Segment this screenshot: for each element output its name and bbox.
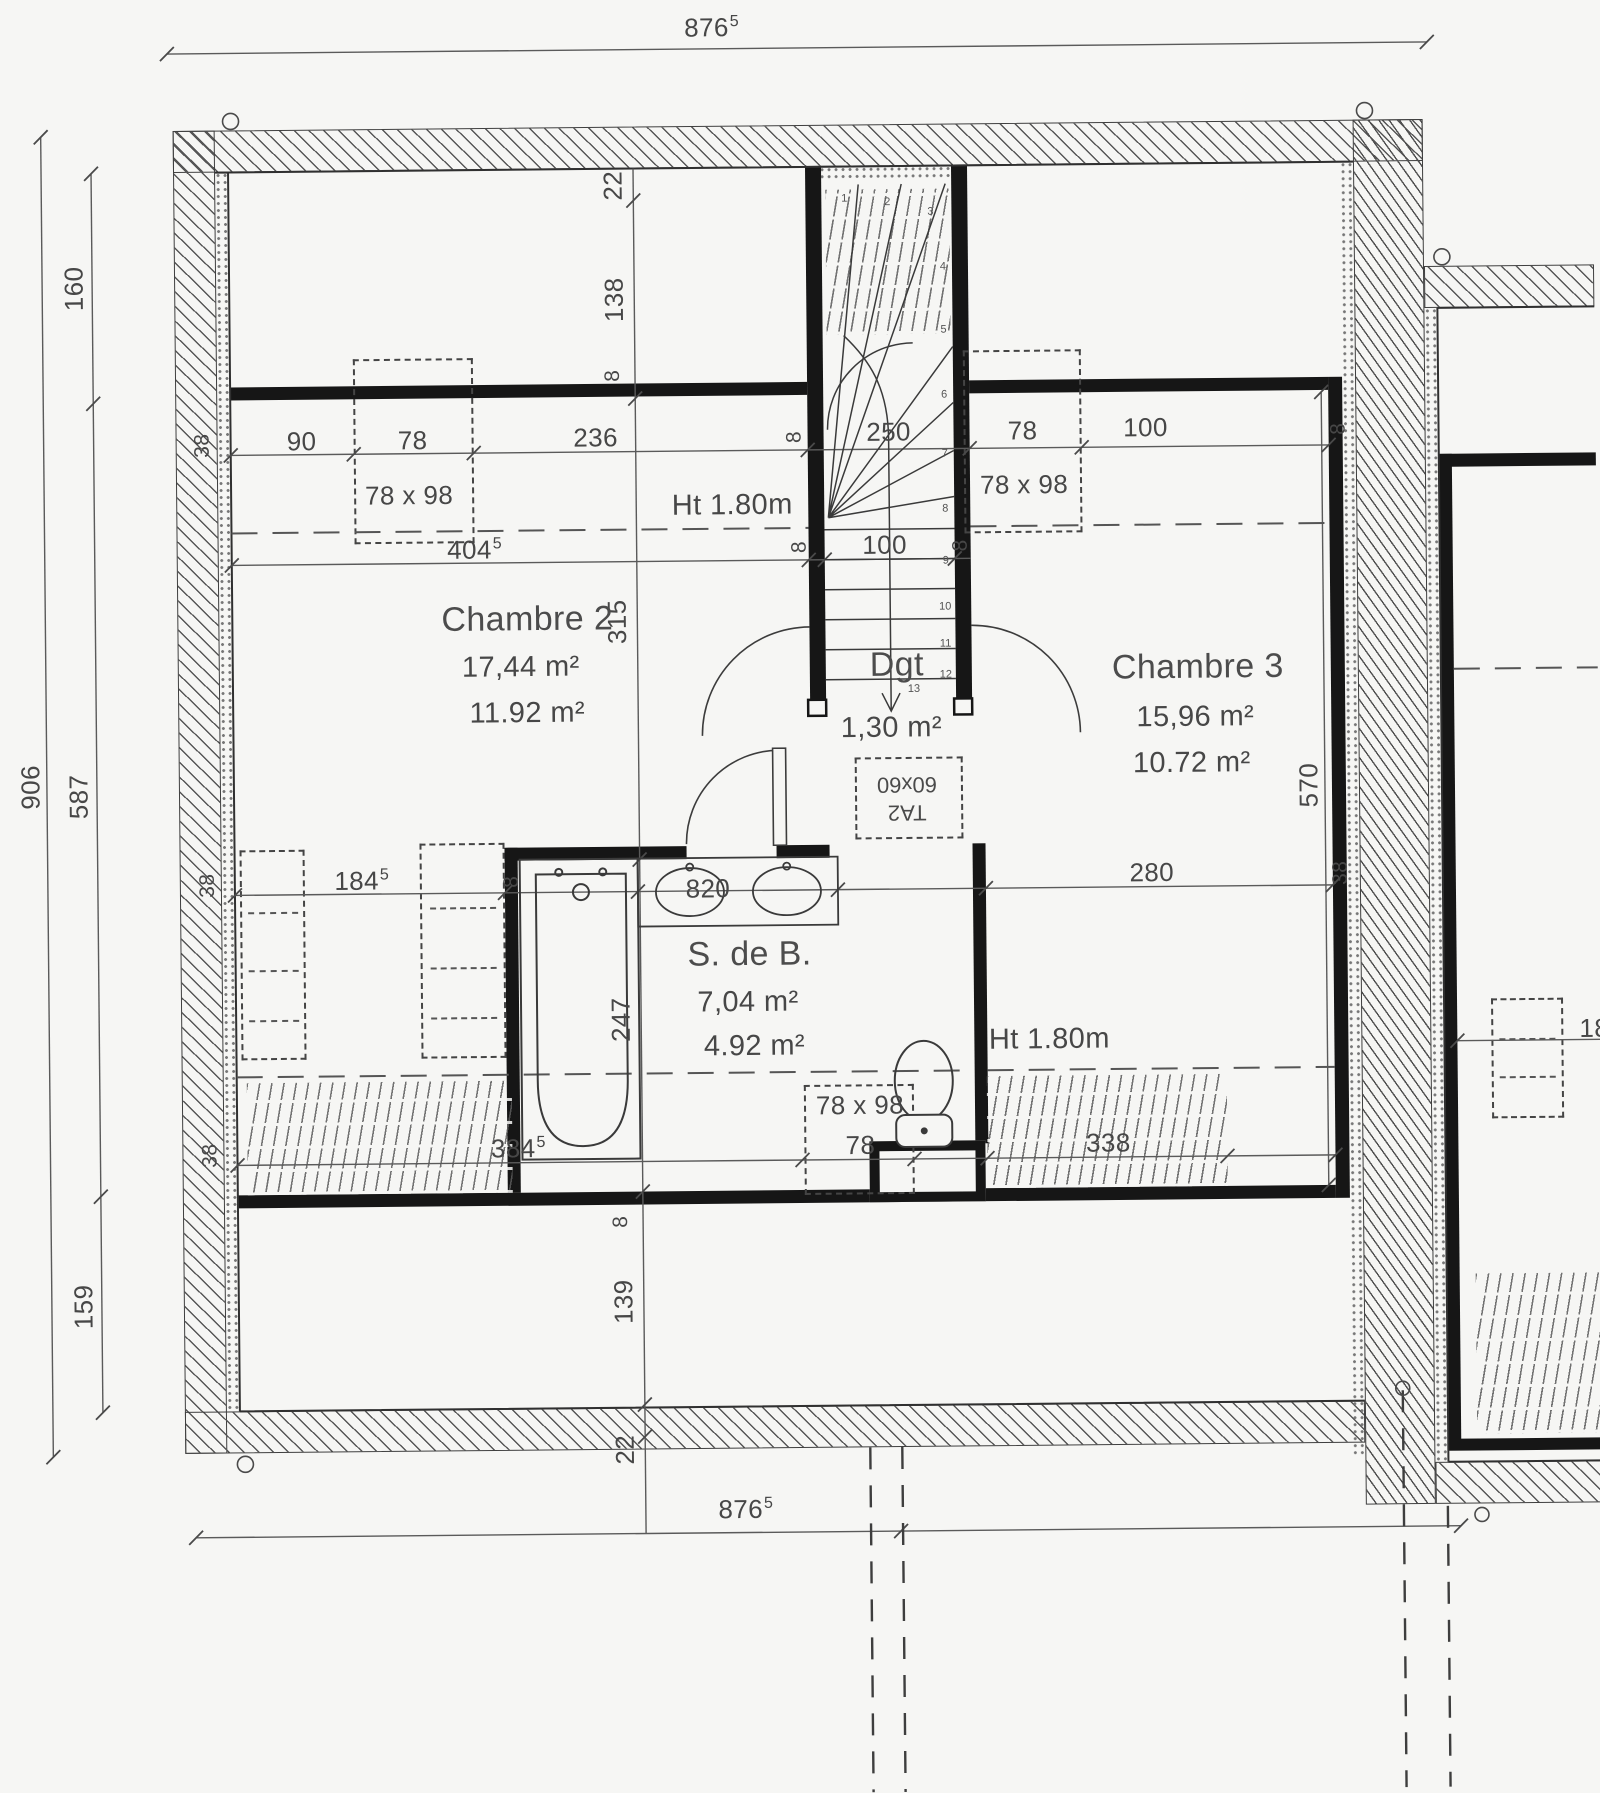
- room-area2-chambre2: 11.92 m²: [469, 697, 585, 731]
- dim-left-160: 160: [58, 266, 89, 311]
- stair-step-8: 8: [942, 503, 948, 515]
- dim-col-138: 138: [599, 277, 630, 322]
- window-size-chambre2: 78 x 98: [365, 480, 453, 512]
- dim-338: 338: [1086, 1127, 1131, 1158]
- dim-78-window-bath: 78: [845, 1130, 875, 1161]
- room-name-bathroom: S. de B.: [687, 934, 812, 974]
- dim-8-stair-right: 8: [949, 539, 973, 551]
- dim-overall-width-bottom: 8765: [718, 1494, 773, 1526]
- dim-wall-38: 38: [191, 434, 215, 458]
- dim-90: 90: [287, 426, 317, 457]
- dim-col-139: 139: [608, 1279, 639, 1324]
- dim-col-247: 247: [605, 997, 636, 1042]
- dim-col-8-north: 8: [601, 370, 625, 382]
- dim-wall-38-west: 38: [196, 873, 220, 897]
- room-area-chambre3: 15,96 m²: [1136, 700, 1254, 734]
- stair-step-2: 2: [884, 196, 890, 208]
- stair-step-9: 9: [943, 555, 949, 567]
- dim-250: 250: [866, 416, 911, 447]
- floor-plan: 8765 8765 906 160 587 159 22 138 8 315 2…: [0, 0, 1600, 1793]
- window-size-bathroom: 78 x 98: [816, 1090, 904, 1122]
- stair-step-1: 1: [841, 193, 847, 205]
- flue-dashed-lines: [870, 1390, 1451, 1793]
- washbasin-right: [753, 867, 821, 916]
- dim-78-window-left: 78: [398, 425, 428, 456]
- stair-newel-right: [954, 698, 972, 714]
- dim-adjacent-partial: 18: [1579, 1013, 1600, 1044]
- stair-step-11: 11: [940, 638, 952, 650]
- dim-col-22-top: 22: [598, 171, 629, 201]
- dim-wall-38-southwest: 38: [198, 1143, 222, 1167]
- stair-step-6: 6: [941, 389, 947, 401]
- room-name-chambre3: Chambre 3: [1112, 647, 1284, 688]
- dim-wall-38-east: 38: [1329, 861, 1353, 885]
- dim-8-stair-left: 8: [783, 431, 807, 443]
- room-area2-bathroom: 4.92 m²: [704, 1029, 805, 1063]
- dimension-lines: [40, 40, 1600, 1539]
- room-name-chambre2: Chambre 2: [441, 599, 613, 640]
- dim-col-8-south: 8: [609, 1216, 633, 1228]
- dim-8-bathwall: 8: [500, 876, 524, 888]
- stair-step-3: 3: [927, 206, 933, 218]
- dim-78-window-right: 78: [1008, 415, 1038, 446]
- floor-plan-sheet: 8765 8765 906 160 587 159 22 138 8 315 2…: [0, 0, 1600, 1793]
- door-bathroom-leaf: [773, 748, 787, 845]
- stair-winders: [825, 184, 954, 518]
- stair-newel-left: [808, 700, 826, 716]
- dim-left-159: 159: [68, 1284, 99, 1329]
- dim-236: 236: [573, 422, 618, 453]
- room-area-chambre2: 17,44 m²: [462, 651, 580, 685]
- dim-384-5: 3845: [491, 1133, 546, 1165]
- dim-404-5: 4045: [447, 534, 502, 566]
- room-area2-chambre3: 10.72 m²: [1133, 746, 1251, 780]
- stair-step-13: 13: [908, 683, 920, 695]
- room-area-bathroom: 7,04 m²: [697, 986, 798, 1020]
- tap-right: [783, 863, 790, 870]
- stair-step-12: 12: [940, 669, 952, 681]
- door-bathroom-arc: [686, 750, 780, 844]
- dim-left-587: 587: [63, 774, 94, 819]
- dim-820: 820: [685, 873, 730, 904]
- attic-hatch-label: TA2 60x60: [877, 771, 937, 827]
- drawing-overlay: [0, 0, 1600, 1793]
- dim-col-22-bottom: 22: [610, 1435, 641, 1465]
- door-chambre2-arc: [701, 627, 810, 736]
- room-area-degagement: 1,30 m²: [841, 711, 942, 745]
- room-name-degagement: Dgt: [870, 645, 924, 685]
- dim-overall-height: 906: [15, 765, 46, 810]
- door-chambre3-arc: [971, 624, 1080, 733]
- dim-8-stair: 8: [788, 541, 812, 553]
- dim-overall-width-top: 8765: [684, 12, 739, 44]
- window-size-chambre3: 78 x 98: [980, 469, 1068, 501]
- dim-100-stair: 100: [862, 529, 907, 560]
- dim-280: 280: [1129, 857, 1174, 888]
- dim-100: 100: [1123, 412, 1168, 443]
- survey-markers: [222, 101, 1489, 1533]
- height-line-north: Ht 1.80m: [672, 489, 793, 523]
- stair-step-5: 5: [940, 324, 946, 336]
- dim-184-5: 1845: [334, 865, 389, 897]
- stair-step-4: 4: [940, 261, 946, 273]
- stair-step-7: 7: [942, 448, 948, 460]
- dimension-ticks: [33, 35, 1469, 1547]
- dim-8-east: 8: [1326, 423, 1350, 435]
- tap-left: [686, 864, 693, 871]
- stair-step-10: 10: [939, 601, 951, 613]
- height-line-south: Ht 1.80m: [989, 1023, 1110, 1057]
- dim-570: 570: [1293, 763, 1324, 808]
